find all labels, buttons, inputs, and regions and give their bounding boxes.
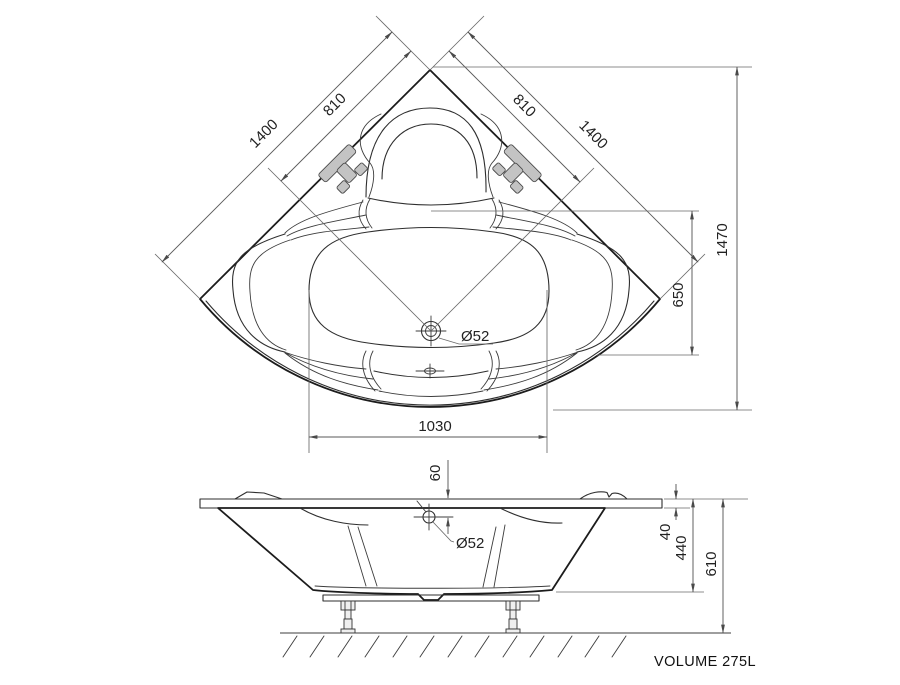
rim-inner-arc — [206, 301, 654, 405]
headrest-lip — [580, 492, 627, 499]
interior-edge-right — [483, 525, 505, 587]
dim-label-1400-right: 1400 — [575, 117, 611, 153]
headrest-arch-outer — [366, 108, 486, 197]
ground-hatching — [283, 636, 626, 657]
headrest-arch-inner — [382, 124, 477, 179]
dim-label-440: 440 — [673, 535, 690, 560]
drawing-canvas: 1400 810 810 1400 1470 650 — [0, 0, 900, 685]
armrest-profile-right — [500, 508, 562, 523]
front-seat-lower-curve — [379, 391, 483, 397]
front-notch-right — [481, 351, 499, 391]
front-notch-left — [363, 351, 381, 391]
dim-1030: 1030 — [309, 290, 547, 453]
deck-rim — [200, 499, 662, 508]
volume-label: VOLUME 275L — [654, 654, 756, 670]
drain-label-top: Ø52 — [439, 328, 493, 345]
grab-handle-right — [489, 144, 542, 197]
interior-edge-left — [348, 526, 377, 586]
dim-label-40: 40 — [657, 524, 674, 541]
dim-440: 440 — [556, 499, 704, 592]
right-lobe-inner — [572, 240, 612, 350]
seat-notch-left — [359, 199, 372, 229]
leg-left — [341, 601, 355, 633]
dim-label-1030: 1030 — [418, 418, 451, 435]
dim-610: 610 — [703, 499, 723, 633]
dim-label-610: 610 — [703, 551, 720, 576]
overflow-marker — [416, 364, 444, 378]
drain-label-side-text: Ø52 — [456, 535, 484, 552]
top-view: 1400 810 810 1400 1470 650 — [155, 16, 752, 453]
drain-label-side: Ø52 — [433, 522, 484, 552]
corner-extension-lines — [155, 16, 705, 299]
dim-label-60: 60 — [427, 465, 444, 482]
dim-label-810-left: 810 — [320, 90, 350, 120]
drain-side — [414, 501, 453, 530]
dim-label-1470: 1470 — [714, 223, 731, 256]
seat-back-edge — [368, 198, 494, 205]
rim-sweep-right — [481, 114, 502, 197]
drain-extension-lines — [268, 168, 594, 331]
dim-1400-left: 1400 — [162, 32, 392, 262]
dim-label-650: 650 — [670, 282, 687, 307]
shell-inner-bottom — [315, 586, 550, 588]
bathtub-technical-drawing: 1400 810 810 1400 1470 650 — [0, 0, 900, 685]
left-lobe-outer — [233, 234, 285, 352]
dim-1400-right: 1400 — [468, 32, 698, 262]
corner-lip — [235, 492, 282, 499]
leg-right — [506, 601, 520, 633]
dim-40: 40 — [657, 484, 748, 540]
left-lobe-inner — [250, 240, 290, 350]
drain-label-top-text: Ø52 — [461, 328, 489, 345]
side-view: 60 Ø52 40 440 610 VOLUME 275L — [200, 460, 756, 670]
dim-label-1400-left: 1400 — [246, 116, 282, 152]
seat-notch-right — [490, 199, 503, 229]
armrest-profile-left — [300, 508, 368, 525]
